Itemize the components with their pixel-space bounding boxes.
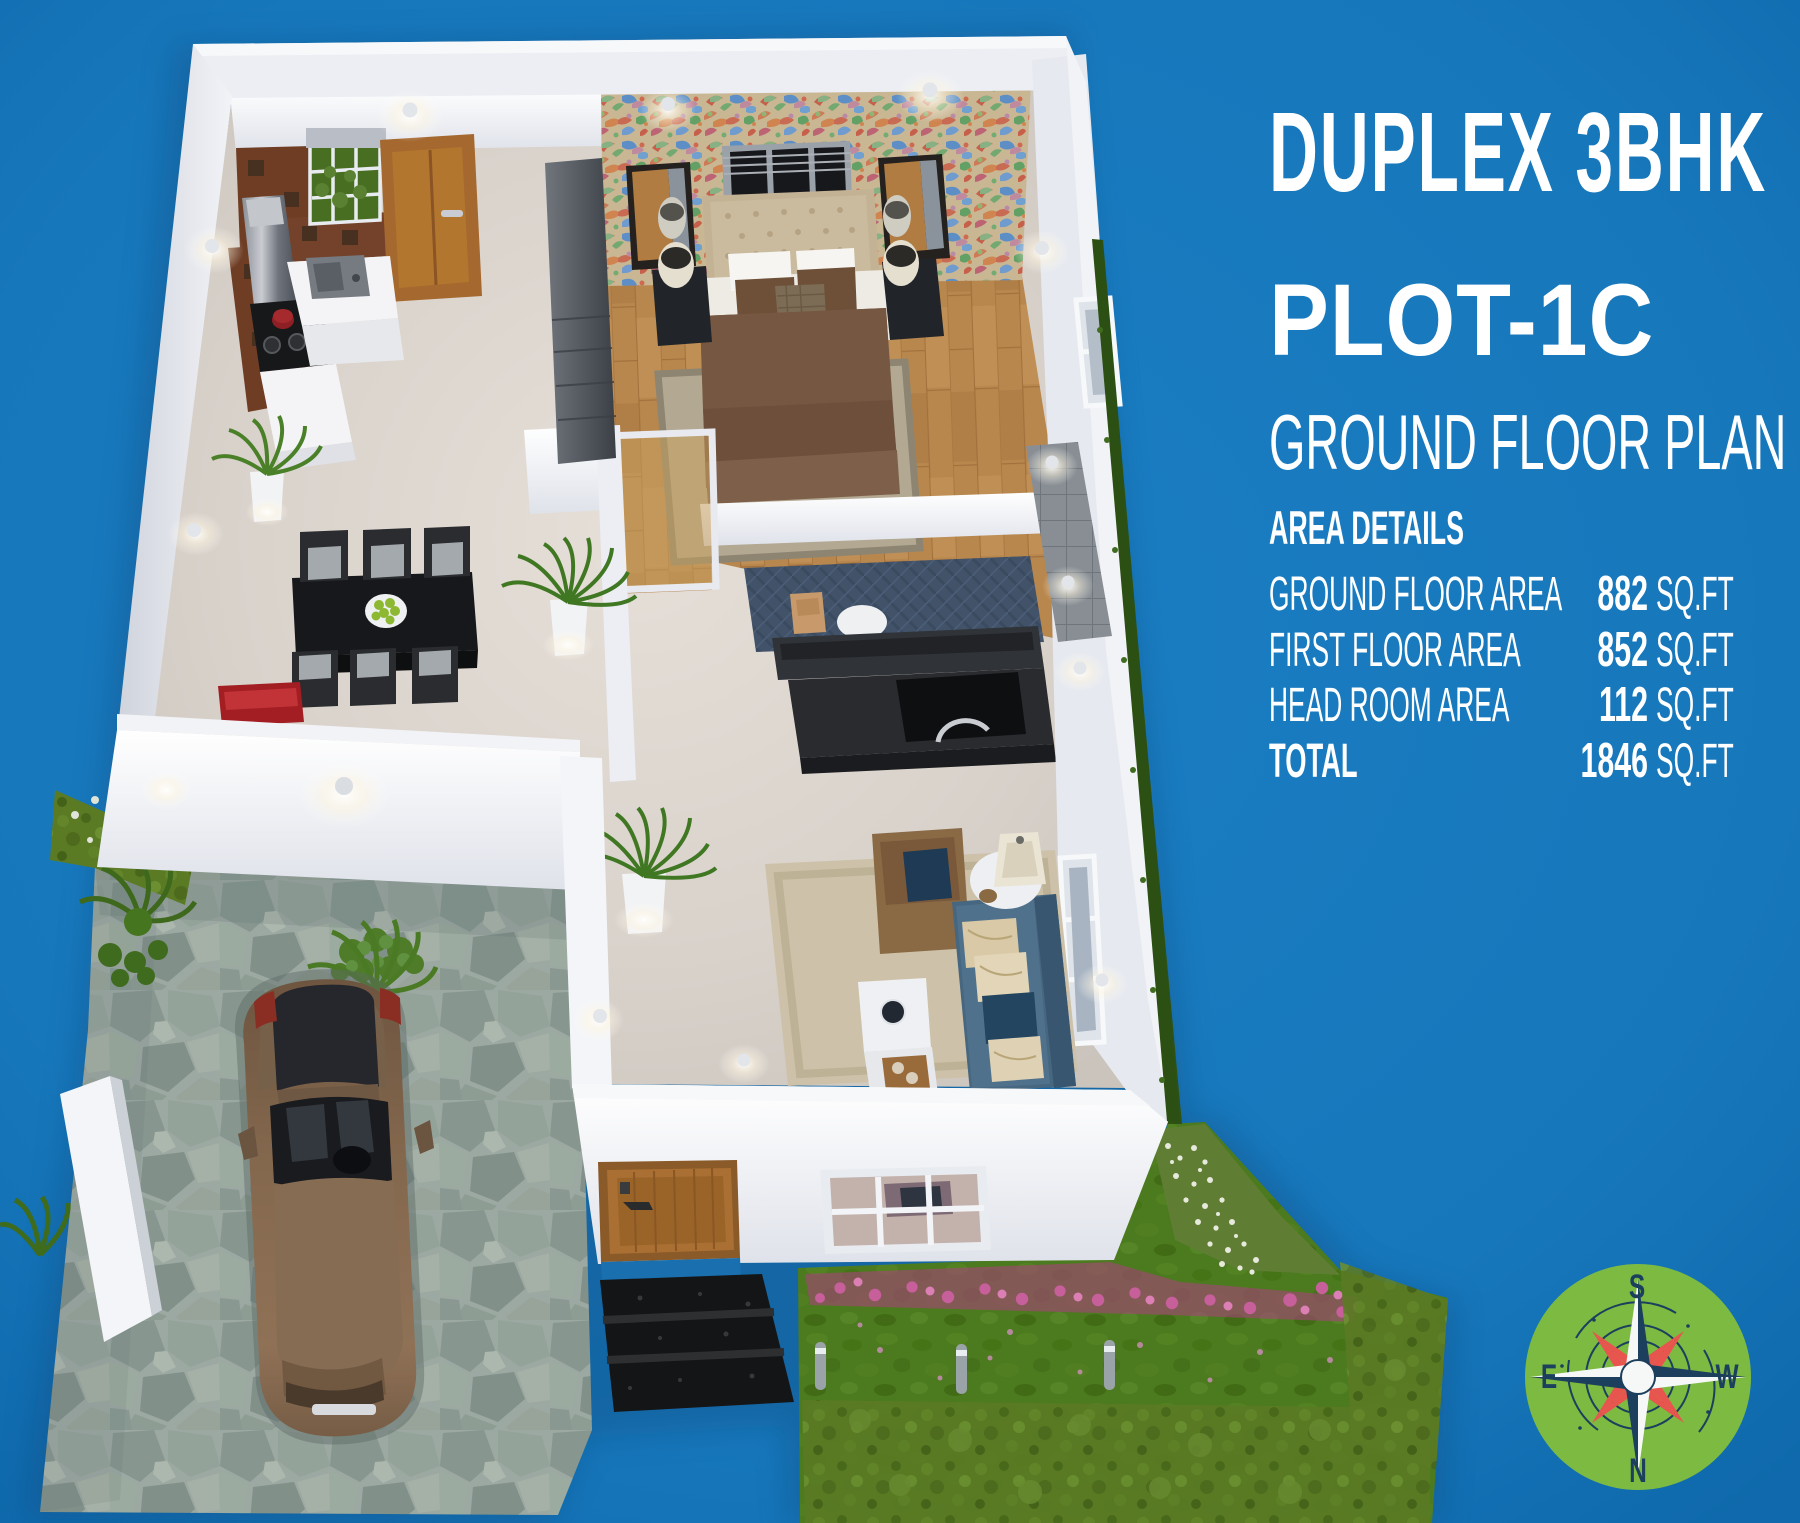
- svg-text:FIRST FLOOR AREA: FIRST FLOOR AREA: [1269, 624, 1521, 677]
- svg-text:SQ.FT: SQ.FT: [1656, 735, 1734, 788]
- svg-text:N: N: [1629, 1452, 1647, 1490]
- svg-text:DUPLEX 3BHK: DUPLEX 3BHK: [1269, 89, 1767, 215]
- svg-text:W: W: [1715, 1358, 1738, 1396]
- svg-text:S: S: [1629, 1268, 1645, 1306]
- svg-text:SQ.FT: SQ.FT: [1656, 568, 1734, 621]
- svg-text:GROUND FLOOR AREA: GROUND FLOOR AREA: [1269, 568, 1562, 621]
- svg-text:882: 882: [1597, 566, 1648, 621]
- svg-text:1846: 1846: [1580, 733, 1648, 788]
- svg-text:SQ.FT: SQ.FT: [1656, 624, 1734, 677]
- svg-text:E: E: [1541, 1358, 1557, 1396]
- svg-text:GROUND FLOOR PLAN: GROUND FLOOR PLAN: [1269, 399, 1786, 486]
- svg-text:112: 112: [1599, 677, 1648, 732]
- svg-text:PLOT-1C: PLOT-1C: [1269, 264, 1654, 378]
- svg-text:HEAD ROOM AREA: HEAD ROOM AREA: [1269, 679, 1510, 732]
- svg-text:AREA DETAILS: AREA DETAILS: [1269, 502, 1464, 555]
- svg-text:TOTAL: TOTAL: [1269, 735, 1358, 788]
- svg-text:SQ.FT: SQ.FT: [1656, 679, 1734, 732]
- svg-text:852: 852: [1597, 622, 1648, 677]
